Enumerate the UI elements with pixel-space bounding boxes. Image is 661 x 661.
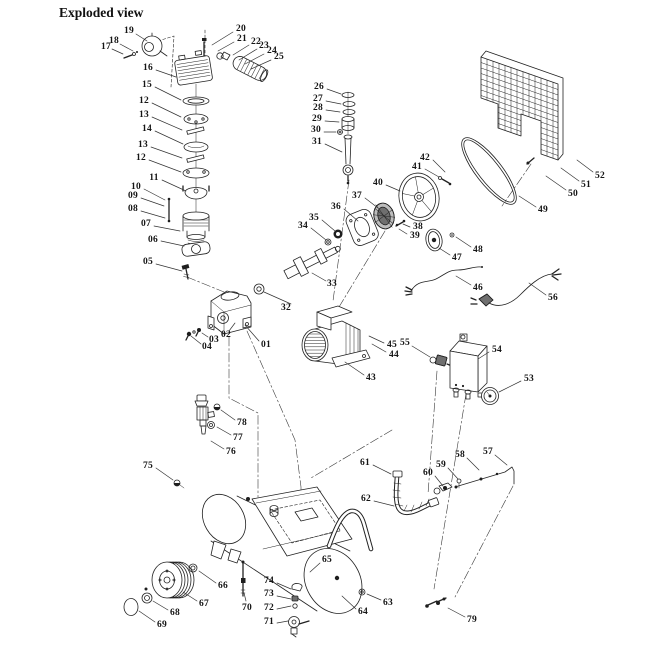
flywheel-bolt xyxy=(439,177,452,186)
part-label-69: 69 xyxy=(157,620,167,630)
flywheel xyxy=(395,170,443,224)
leader-line-73 xyxy=(277,596,291,599)
part-label-59: 59 xyxy=(436,460,446,470)
part-label-15: 15 xyxy=(142,80,152,90)
part-label-63: 63 xyxy=(383,598,393,608)
crankcase xyxy=(208,291,251,334)
part-label-31: 31 xyxy=(312,137,322,147)
leader-line-18 xyxy=(120,44,133,51)
part-label-75: 75 xyxy=(143,461,153,471)
leader-line-40 xyxy=(386,185,400,191)
leader-line-28 xyxy=(326,110,340,112)
leader-line-47 xyxy=(439,248,450,255)
leader-line-48 xyxy=(456,237,471,247)
leader-line-39 xyxy=(399,229,407,234)
part-label-16: 16 xyxy=(143,63,153,73)
part-label-70: 70 xyxy=(242,603,252,613)
hub-cap xyxy=(142,588,152,604)
leader-line-63 xyxy=(367,594,381,600)
leader-line-75 xyxy=(156,468,173,480)
leader-line-13 xyxy=(152,117,182,130)
part-label-39: 39 xyxy=(410,231,420,241)
tank-platform xyxy=(246,487,352,556)
end-cap xyxy=(124,599,138,616)
leader-line-19 xyxy=(136,34,147,41)
belt-guard xyxy=(481,51,563,165)
leader-line-56 xyxy=(529,283,546,295)
part-label-35: 35 xyxy=(309,213,319,223)
ring-set xyxy=(342,92,355,134)
part-label-60: 60 xyxy=(423,468,433,478)
leader-line-66 xyxy=(199,571,216,583)
leader-line-37 xyxy=(365,198,378,208)
leader-line-70 xyxy=(244,593,246,601)
leader-line-50 xyxy=(546,176,566,190)
leader-line-34 xyxy=(311,228,326,240)
cylinder-head xyxy=(173,49,212,85)
part-label-54: 54 xyxy=(492,345,502,355)
part-label-43: 43 xyxy=(366,373,376,383)
part-label-07: 07 xyxy=(141,219,151,229)
leader-line-78 xyxy=(221,410,235,420)
leader-line-22 xyxy=(233,45,249,55)
leader-line-52 xyxy=(577,160,593,172)
motor-pulley xyxy=(424,228,444,253)
head-stud xyxy=(182,264,190,279)
part-label-71: 71 xyxy=(264,617,274,627)
leader-line-60 xyxy=(435,476,443,486)
part-label-25: 25 xyxy=(274,52,284,62)
leader-line-68 xyxy=(153,601,168,610)
leader-line-01 xyxy=(245,325,259,341)
part-label-67: 67 xyxy=(199,599,209,609)
head-bolt xyxy=(202,38,207,56)
part-label-68: 68 xyxy=(170,608,180,618)
part-label-36: 36 xyxy=(331,202,341,212)
motor xyxy=(302,306,370,367)
connecting-rod xyxy=(343,135,353,184)
part-label-52: 52 xyxy=(595,171,605,181)
leader-line-29 xyxy=(325,121,339,122)
part-label-65: 65 xyxy=(322,555,332,565)
pulley-bolt xyxy=(450,233,454,237)
leader-line-31 xyxy=(325,144,342,152)
part-label-37: 37 xyxy=(352,191,362,201)
leader-line-69 xyxy=(139,611,155,622)
part-label-19: 19 xyxy=(124,26,134,36)
part-label-51: 51 xyxy=(581,180,591,190)
part-label-45: 45 xyxy=(387,340,397,350)
part-label-08: 08 xyxy=(128,204,138,214)
check-valve xyxy=(430,355,452,366)
part-label-26: 26 xyxy=(314,82,324,92)
wheel xyxy=(152,562,194,598)
leader-line-42 xyxy=(433,160,445,172)
discharge-pipe xyxy=(455,467,515,489)
leader-line-38 xyxy=(403,224,410,227)
part-label-47: 47 xyxy=(452,253,462,263)
part-label-21: 21 xyxy=(237,34,247,44)
base-gasket xyxy=(181,241,210,257)
part-label-62: 62 xyxy=(361,494,371,504)
part-label-17: 17 xyxy=(101,42,111,52)
air-filter xyxy=(142,33,167,56)
valve-dome xyxy=(183,186,209,199)
part-label-29: 29 xyxy=(312,114,322,124)
part-label-42: 42 xyxy=(420,153,430,163)
leader-line-09 xyxy=(141,198,164,206)
crank-bearing xyxy=(254,284,264,294)
drive-belt xyxy=(454,131,525,212)
part-label-50: 50 xyxy=(568,189,578,199)
part-label-44: 44 xyxy=(389,350,399,360)
part-label-02: 02 xyxy=(221,330,231,340)
part-label-79: 79 xyxy=(467,615,477,625)
leader-line-55 xyxy=(412,346,430,357)
part-label-05: 05 xyxy=(143,257,153,267)
leader-line-43 xyxy=(345,362,364,375)
leader-line-03 xyxy=(202,333,208,337)
leader-line-13 xyxy=(151,147,182,158)
drain-cock xyxy=(289,617,310,638)
part-label-49: 49 xyxy=(538,205,548,215)
part-label-53: 53 xyxy=(524,374,534,384)
tank-bolts xyxy=(425,598,446,608)
part-label-06: 06 xyxy=(148,235,158,245)
leader-line-76 xyxy=(211,441,224,449)
part-label-61: 61 xyxy=(360,458,370,468)
part-label-77: 77 xyxy=(233,433,243,443)
tank-plug xyxy=(174,480,184,488)
key-bolt xyxy=(396,220,406,227)
leader-line-20 xyxy=(212,32,233,45)
part-label-58: 58 xyxy=(455,450,465,460)
drain-washer xyxy=(293,604,297,608)
leader-line-27 xyxy=(326,101,341,104)
part-label-74: 74 xyxy=(264,576,274,586)
part-label-73: 73 xyxy=(264,589,274,599)
dowel-pin xyxy=(168,198,171,223)
part-label-09: 09 xyxy=(128,191,138,201)
drain-flange xyxy=(292,583,302,591)
leader-line-57 xyxy=(495,455,507,465)
part-label-32: 32 xyxy=(281,303,291,313)
part-label-01: 01 xyxy=(261,340,271,350)
exploded-view-page: Exploded view xyxy=(0,0,661,661)
leader-line-71 xyxy=(277,621,288,623)
leader-line-61 xyxy=(373,465,391,474)
part-label-33: 33 xyxy=(327,279,337,289)
leader-line-79 xyxy=(448,608,465,617)
leader-line-49 xyxy=(519,196,536,207)
leader-line-26 xyxy=(327,89,341,94)
leader-line-59 xyxy=(448,468,458,479)
outlet-fitting xyxy=(217,52,230,60)
part-label-46: 46 xyxy=(473,283,483,293)
leader-line-72 xyxy=(277,606,291,609)
leader-line-44 xyxy=(372,344,386,352)
leader-line-17 xyxy=(112,49,123,54)
leader-line-06 xyxy=(161,241,184,246)
drain-nut xyxy=(292,596,298,601)
leader-line-62 xyxy=(374,501,394,506)
part-label-14: 14 xyxy=(142,124,152,134)
crankshaft xyxy=(282,239,344,283)
wire-harness xyxy=(405,266,483,295)
leader-line-51 xyxy=(561,168,579,181)
part-label-11: 11 xyxy=(149,173,159,183)
part-label-28: 28 xyxy=(313,103,323,113)
pressure-gauge xyxy=(478,388,499,405)
leader-line-07 xyxy=(154,226,180,231)
leader-line-21 xyxy=(218,42,234,51)
leader-line-33 xyxy=(312,273,326,281)
part-label-41: 41 xyxy=(412,162,422,172)
muffler xyxy=(231,54,270,83)
leader-line-58 xyxy=(467,458,479,470)
leader-line-45 xyxy=(369,336,384,343)
leader-line-53 xyxy=(499,381,521,392)
leader-line-23 xyxy=(239,49,257,60)
leader-line-46 xyxy=(456,276,471,285)
part-label-56: 56 xyxy=(548,293,558,303)
part-label-66: 66 xyxy=(218,581,228,591)
part-label-57: 57 xyxy=(483,447,493,457)
part-label-13: 13 xyxy=(138,140,148,150)
part-label-78: 78 xyxy=(237,418,247,428)
part-label-34: 34 xyxy=(298,221,308,231)
part-label-12: 12 xyxy=(139,96,149,106)
part-label-72: 72 xyxy=(264,603,274,613)
leader-line-12 xyxy=(152,103,181,117)
leader-line-08 xyxy=(141,211,165,218)
guard-bolt xyxy=(527,158,535,165)
part-label-04: 04 xyxy=(202,342,212,352)
part-label-76: 76 xyxy=(226,447,236,457)
part-label-20: 20 xyxy=(236,24,246,34)
part-label-13: 13 xyxy=(139,110,149,120)
axle-bolt xyxy=(241,561,246,597)
part-label-12: 12 xyxy=(136,153,146,163)
part-label-40: 40 xyxy=(373,178,383,188)
part-label-48: 48 xyxy=(473,245,483,255)
part-label-64: 64 xyxy=(358,607,368,617)
leader-line-15 xyxy=(155,87,181,100)
leader-line-77 xyxy=(217,427,231,435)
leader-line-12 xyxy=(149,160,181,172)
leader-line-16 xyxy=(156,70,176,77)
filter-screws xyxy=(124,51,138,58)
leader-line-14 xyxy=(155,131,183,144)
leader-line-04 xyxy=(191,336,201,344)
part-label-30: 30 xyxy=(311,125,321,135)
leader-line-10 xyxy=(144,189,165,200)
small-piston xyxy=(338,117,355,135)
leader-line-35 xyxy=(322,220,335,231)
leader-line-05 xyxy=(156,264,182,271)
pressure-switch xyxy=(450,334,487,399)
leader-line-11 xyxy=(162,180,186,191)
part-label-55: 55 xyxy=(400,338,410,348)
